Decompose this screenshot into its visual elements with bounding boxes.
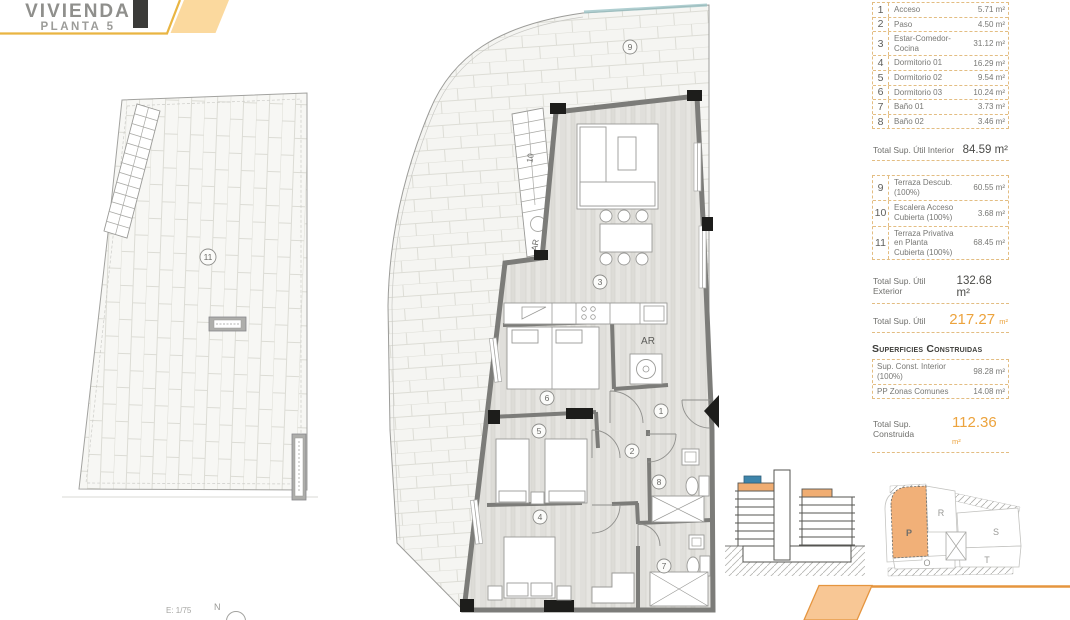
total-label: Total Sup. Útil Interior (873, 145, 954, 155)
total-value: 112.36 m² (952, 414, 1008, 448)
room-label-6: 6 (545, 393, 550, 403)
total-interior: Total Sup. Útil Interior 84.59 m² (872, 141, 1009, 161)
room-number: 9 (873, 176, 889, 199)
dining-table (600, 224, 652, 252)
bedroom3-furniture (507, 327, 599, 389)
site-key-plan: P R S T O (880, 475, 1030, 580)
total-label: Total Sup. Construida (873, 419, 952, 439)
sink (682, 449, 699, 465)
room-label-9: 9 (628, 42, 633, 52)
block-t (959, 546, 1021, 567)
table-row: PP Zonas Comunes14.08 m² (873, 385, 1008, 399)
block-letter-o: O (923, 558, 930, 568)
room-label-11: 11 (204, 252, 213, 262)
footer-accent-shape (800, 583, 1070, 620)
block-s (957, 508, 1021, 548)
block-letter-t: T (984, 555, 990, 565)
roof-terrace-plan: 11 (55, 85, 325, 505)
total-label: Total Sup. Útil (873, 316, 925, 326)
block-letter-s: S (993, 527, 999, 537)
table-row: Sup. Const. Interior (100%)98.28 m² (873, 360, 1008, 384)
room-label-8: 8 (657, 477, 662, 487)
table-row: 6Dormitorio 0310.24 m² (873, 86, 1008, 101)
block-letter-p: P (906, 528, 912, 538)
roof-terrace-label: 11 (200, 249, 216, 265)
room-area: 31.12 m² (961, 32, 1008, 55)
room-name: Terraza Descub. (100%) (889, 176, 961, 199)
constructed-areas-table: Sup. Const. Interior (100%)98.28 m² PP Z… (872, 359, 1009, 399)
left-tower (735, 491, 777, 546)
core-shaft (774, 470, 790, 560)
roof-plan-outline (62, 93, 318, 497)
highlighted-floor-left (738, 483, 774, 491)
room-area: 4.50 m² (961, 18, 1008, 32)
total-construida: Total Sup. Construida 112.36 m² (872, 411, 1009, 453)
nightstand (531, 492, 544, 504)
scale-label: E: 1/75 (166, 606, 191, 615)
table-row: 1Acceso5.71 m² (873, 3, 1008, 18)
table-row: 4Dormitorio 0116.29 m² (873, 56, 1008, 71)
row-label: Sup. Const. Interior (100%) (873, 360, 961, 383)
table-row: 5Dormitorio 029.54 m² (873, 71, 1008, 86)
room-area: 3.68 m² (961, 201, 1008, 226)
stair-closet-label: AR (529, 238, 541, 251)
room-number: 2 (873, 18, 889, 32)
room-label-4: 4 (538, 512, 543, 522)
room-label-10: 10 (524, 152, 535, 163)
room-number: 3 (873, 32, 889, 55)
room-name: Dormitorio 03 (889, 86, 961, 100)
constructed-areas-heading: Superficies Construidas (872, 343, 1009, 355)
sink (689, 535, 704, 549)
room-number: 6 (873, 86, 889, 100)
room-label-5: 5 (537, 426, 542, 436)
block-p-highlighted (891, 486, 928, 558)
right-tower (799, 497, 855, 546)
block-letter-r: R (938, 508, 945, 518)
site-core (946, 532, 966, 560)
row-area: 14.08 m² (961, 385, 1008, 399)
header-accent-parallelogram (171, 0, 230, 33)
closet-label: AR (641, 336, 655, 347)
roof-skylight (209, 317, 246, 331)
room-area: 60.55 m² (961, 176, 1008, 199)
plan-sheet: VIVIENDA PLANTA 5 (0, 0, 1070, 620)
room-name: Escalera Acceso Cubierta (100%) (889, 201, 961, 226)
room-name: Estar-Comedor-Cocina (889, 32, 961, 55)
coffee-table (618, 137, 636, 170)
room-label-1: 1 (659, 406, 664, 416)
total-util: Total Sup. Útil 217.27 m² (872, 308, 1009, 333)
north-arrow-icon (226, 611, 246, 620)
north-label: N (214, 602, 221, 612)
interior-areas-table: 1Acceso5.71 m² 2Paso4.50 m² 3Estar-Comed… (872, 2, 1009, 129)
total-label: Total Sup. Útil Exterior (873, 276, 957, 296)
exterior-areas-table: 9Terraza Descub. (100%)60.55 m² 10Escale… (872, 175, 1009, 260)
room-area: 5.71 m² (961, 3, 1008, 17)
room-area: 68.45 m² (961, 227, 1008, 260)
room-name: Dormitorio 01 (889, 56, 961, 70)
room-area: 9.54 m² (961, 71, 1008, 85)
table-row: 10Escalera Acceso Cubierta (100%)3.68 m² (873, 201, 1008, 227)
title-block: VIVIENDA PLANTA 5 (0, 0, 240, 42)
highlighted-floor-right (802, 489, 832, 497)
row-area: 98.28 m² (961, 360, 1008, 383)
room-number: 4 (873, 56, 889, 70)
room-label-2: 2 (630, 446, 635, 456)
room-number: 7 (873, 100, 889, 114)
room-number: 5 (873, 71, 889, 85)
table-row: 2Paso4.50 m² (873, 18, 1008, 33)
table-row: 8Baño 023.46 m² (873, 115, 1008, 129)
page-subtitle: PLANTA 5 (18, 21, 138, 33)
table-row: 3Estar-Comedor-Cocina31.12 m² (873, 32, 1008, 56)
nightstand (557, 586, 571, 600)
pool-element (744, 476, 761, 483)
table-row: 11Terraza Privativa en Planta Cubierta (… (873, 227, 1008, 260)
room-number: 8 (873, 115, 889, 129)
nightstand (488, 586, 502, 600)
room-name: Dormitorio 02 (889, 71, 961, 85)
room-number: 11 (873, 227, 889, 260)
toilet (686, 477, 698, 495)
building-mark (133, 0, 148, 28)
building-section-diagram (725, 468, 870, 580)
room-number: 1 (873, 3, 889, 17)
table-row: 9Terraza Descub. (100%)60.55 m² (873, 176, 1008, 200)
room-number: 10 (873, 201, 889, 226)
total-exterior: Total Sup. Útil Exterior 132.68 m² (872, 272, 1009, 304)
room-name: Baño 01 (889, 100, 961, 114)
areas-panel: 1Acceso5.71 m² 2Paso4.50 m² 3Estar-Comed… (872, 2, 1009, 453)
row-label: PP Zonas Comunes (873, 385, 961, 399)
room-area: 16.29 m² (961, 56, 1008, 70)
total-value: 217.27 m² (949, 311, 1008, 328)
table-row: 7Baño 013.73 m² (873, 100, 1008, 115)
room-area: 10.24 m² (961, 86, 1008, 100)
total-value: 132.68 m² (957, 275, 1008, 299)
footer-parallelogram (804, 586, 872, 620)
page-title: VIVIENDA (18, 1, 138, 23)
room-name: Baño 02 (889, 115, 961, 129)
room-name: Paso (889, 18, 961, 32)
room-area: 3.46 m² (961, 115, 1008, 129)
room-name: Acceso (889, 3, 961, 17)
room-label-3: 3 (598, 277, 603, 287)
washer (630, 354, 662, 384)
dining-set (600, 210, 652, 265)
room-label-7: 7 (662, 561, 667, 571)
room-name: Terraza Privativa en Planta Cubierta (10… (889, 227, 961, 260)
room-area: 3.73 m² (961, 100, 1008, 114)
basement (743, 546, 851, 562)
total-value: 84.59 m² (963, 144, 1008, 156)
roof-edge-vent (292, 434, 306, 500)
kitchen-counter (504, 303, 667, 324)
main-floor-plan: 9 10 AR (370, 0, 730, 620)
